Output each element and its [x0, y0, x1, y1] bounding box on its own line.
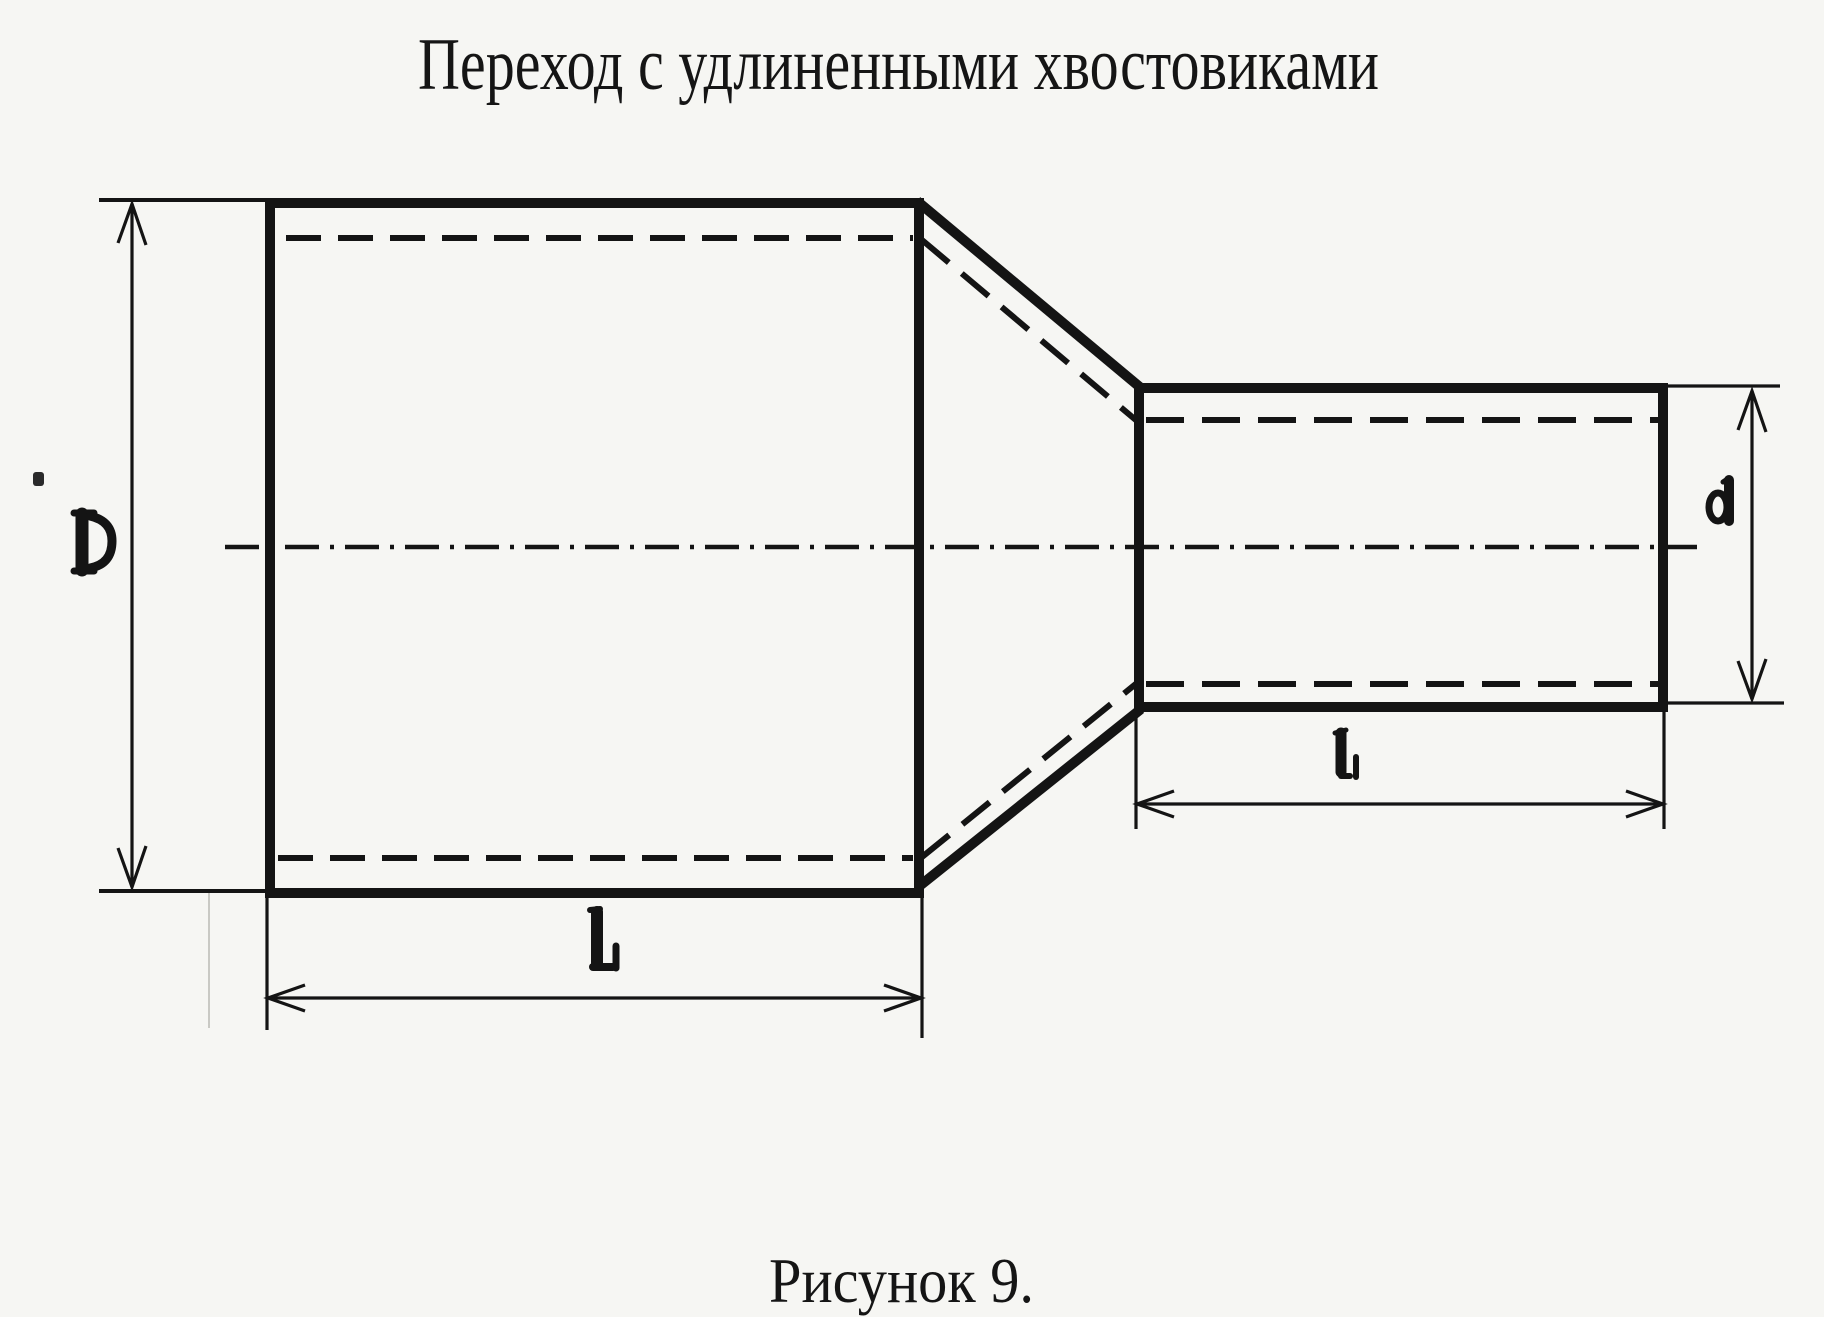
svg-text:Переход с удлиненными хвостови: Переход с удлиненными хвостовиками — [418, 24, 1379, 106]
svg-text:Рисунок 9.: Рисунок 9. — [769, 1245, 1034, 1316]
